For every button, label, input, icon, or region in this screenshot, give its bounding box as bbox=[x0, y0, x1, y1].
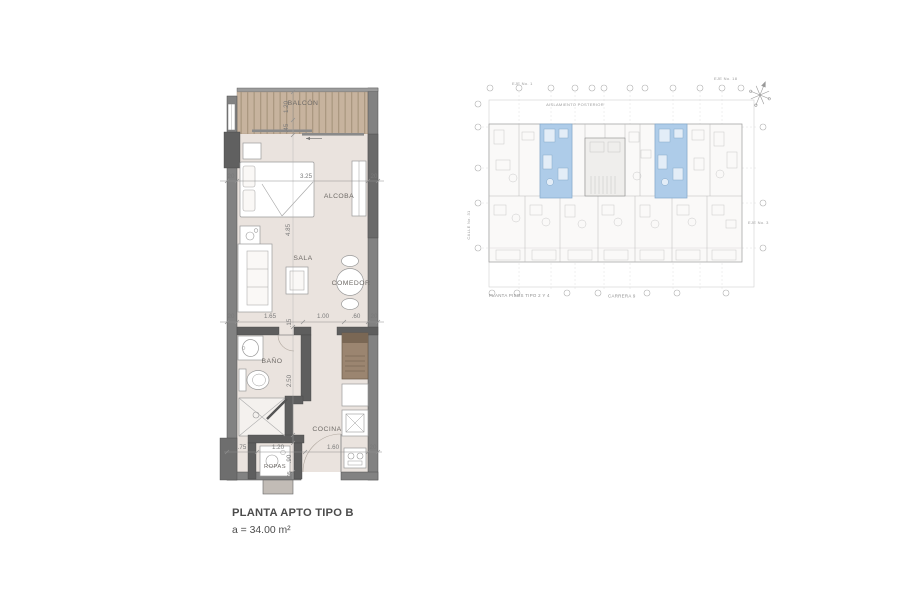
floorplan-svg: BALCÓN ALCOBA SALA COMEDOR BAÑO COCINA R… bbox=[0, 0, 900, 600]
dim-bano-depth: 2.50 bbox=[286, 374, 293, 387]
dim-wall-top-right: 20 bbox=[371, 173, 378, 180]
sofa-symbol bbox=[238, 244, 272, 312]
street-label-bottom: CARRERA 9 bbox=[608, 294, 636, 299]
room-label-comedor: COMEDOR bbox=[332, 280, 371, 287]
building-plan-caption: PLANTA PISOS TIPO 2 Y 4 bbox=[489, 293, 550, 298]
dim-alcoba-length: 4.85 bbox=[285, 223, 292, 236]
closet-symbol bbox=[352, 161, 366, 216]
fridge-symbol bbox=[342, 333, 368, 379]
dim-ropas-niche: .75 bbox=[238, 444, 247, 451]
kitchen-sink-symbol bbox=[342, 410, 368, 436]
room-label-alcoba: ALCOBA bbox=[324, 193, 354, 200]
highlighted-unit-2 bbox=[655, 124, 687, 198]
stove-symbol bbox=[344, 448, 366, 468]
room-label-bano: BAÑO bbox=[261, 356, 282, 365]
building-core bbox=[585, 138, 625, 196]
dim-door-gap: .05 bbox=[287, 471, 293, 479]
counter-symbol bbox=[342, 384, 368, 406]
axis-label-top-left: EJE No. 1 bbox=[512, 81, 533, 86]
dim-mid-wall-left: 20 bbox=[228, 313, 235, 320]
axis-label-right: EJE No. 3 bbox=[748, 220, 769, 225]
highlighted-unit-1 bbox=[540, 124, 572, 198]
plan-area: a = 34.00 m² bbox=[232, 525, 291, 536]
dim-ropas-width: 1.20 bbox=[272, 444, 285, 451]
toilet-symbol bbox=[239, 369, 269, 391]
duct-block bbox=[263, 480, 293, 494]
dim-balcon-door: .45 bbox=[283, 123, 290, 132]
north-compass-icon bbox=[745, 77, 776, 111]
apartment-plan: BALCÓN ALCOBA SALA COMEDOR BAÑO COCINA R… bbox=[220, 88, 384, 536]
room-label-ropas: ROPAS bbox=[264, 464, 286, 470]
room-label-cocina: COCINA bbox=[312, 426, 341, 433]
dim-mid-wall-right: 20 bbox=[371, 313, 378, 320]
dim-alcoba-width: 3.25 bbox=[300, 173, 313, 180]
plan-title: PLANTA APTO TIPO B bbox=[232, 507, 354, 519]
dim-bano-gap: .15 bbox=[286, 318, 293, 327]
bed-symbol bbox=[240, 162, 314, 217]
balcony-rail bbox=[237, 88, 378, 92]
side-table-symbol bbox=[240, 226, 260, 245]
dim-wall-bottom-right: 20 bbox=[370, 444, 377, 451]
setback-label: AISLAMIENTO POSTERIOR bbox=[546, 102, 604, 107]
dim-mid-sala: 1.65 bbox=[264, 313, 277, 320]
building-plan: EJE No. 1 EJE No. 18 AISLAMIENTO POSTERI… bbox=[466, 76, 776, 299]
coffee-table-symbol bbox=[286, 267, 308, 294]
dim-cocina-width: 1.60 bbox=[327, 444, 340, 451]
room-label-balcon: BALCÓN bbox=[288, 98, 319, 107]
nightstand-symbol bbox=[243, 143, 261, 159]
dim-balcon-depth: 1.20 bbox=[283, 100, 290, 113]
street-label-left: CALLE No. 31 bbox=[466, 210, 471, 240]
drawing-canvas: BALCÓN ALCOBA SALA COMEDOR BAÑO COCINA R… bbox=[0, 0, 900, 600]
dim-mid-hall: 1.00 bbox=[317, 313, 330, 320]
balcony-floor bbox=[237, 92, 368, 134]
wall-column bbox=[224, 132, 240, 168]
sink-symbol bbox=[238, 336, 263, 360]
dim-ropas-depth: .90 bbox=[286, 454, 293, 463]
dim-mid-cocina: .60 bbox=[352, 313, 361, 320]
axis-label-top-right: EJE No. 18 bbox=[714, 76, 738, 81]
dim-wall-top-left: 20 bbox=[228, 173, 235, 180]
room-label-sala: SALA bbox=[293, 255, 312, 262]
